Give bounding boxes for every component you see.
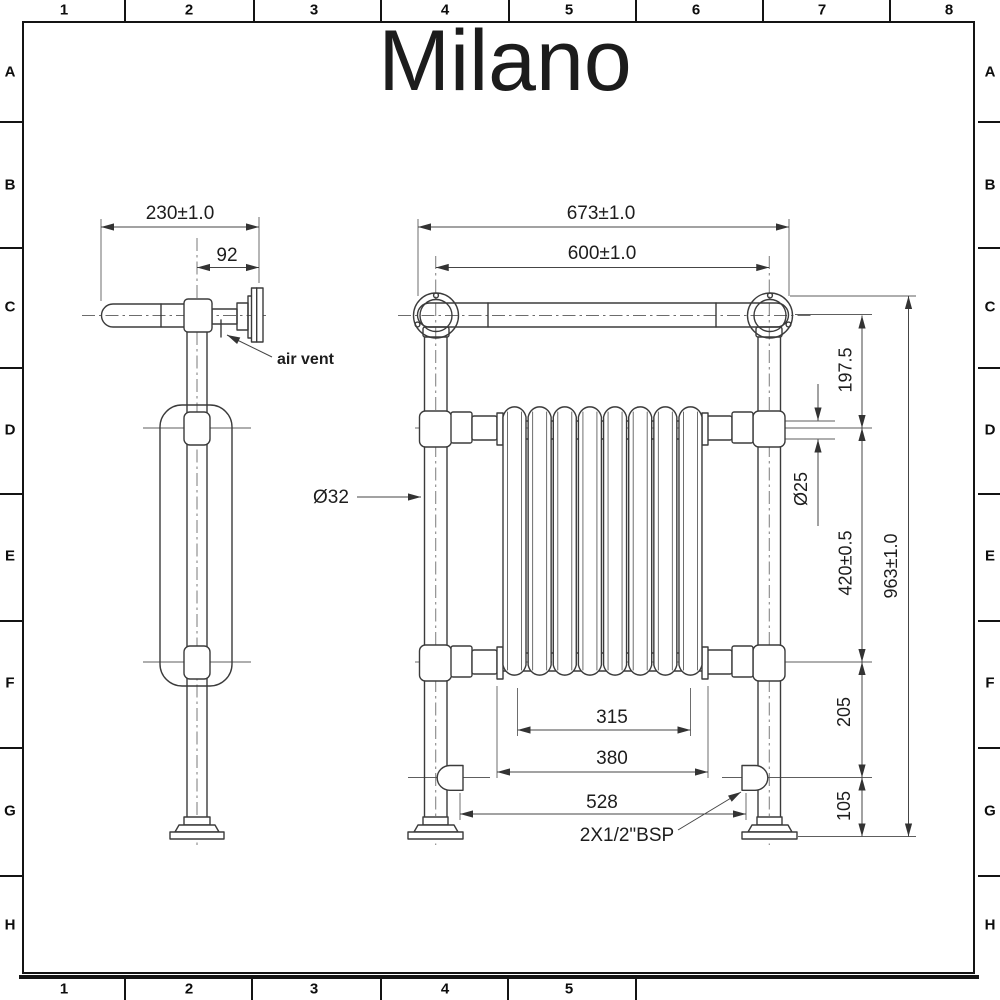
- dim-floor-clearance: 105: [834, 791, 854, 821]
- radiator-section: [629, 407, 652, 675]
- dim-overall-depth: 230±1.0: [146, 203, 215, 224]
- technical-drawing: 230±1.0 92 air vent Ø32 673±1.0 600±1.0 …: [0, 0, 1000, 1000]
- right-valve-connection: [742, 766, 768, 791]
- left-base-flange: [414, 825, 458, 832]
- dim-core-width: 380: [596, 748, 628, 769]
- dim-core-inner-width: 315: [596, 707, 628, 728]
- top-towel-bar: [418, 303, 789, 327]
- right-base-flange: [748, 825, 792, 832]
- side-joint-bottom: [184, 646, 210, 679]
- air-vent-label: air vent: [277, 351, 335, 368]
- dim-valve-centers: 528: [586, 792, 618, 813]
- side-radiator-body: [160, 405, 232, 686]
- bsp-connection-label: 2X1/2"BSP: [580, 825, 674, 846]
- dim-overall-width: 673±1.0: [567, 203, 636, 224]
- radiator-section: [503, 407, 526, 675]
- radiator-section: [528, 407, 551, 675]
- union-nut: [451, 412, 472, 443]
- side-base-flange: [175, 825, 219, 832]
- dim-overall-height: 963±1.0: [881, 534, 901, 599]
- radiator-section: [604, 407, 627, 675]
- dim-top-drop: 197.5: [836, 347, 856, 392]
- dim-valve-drop: 205: [834, 697, 854, 727]
- radiator-core: [503, 407, 702, 675]
- dim-centers-width: 600±1.0: [568, 243, 637, 264]
- left-valve-connection: [437, 766, 463, 791]
- radiator-section: [578, 407, 601, 675]
- side-view: [102, 288, 264, 839]
- dim-crossbar-spacing: 420±0.5: [836, 531, 856, 596]
- dim-post-diameter: Ø32: [313, 487, 349, 508]
- radiator-section: [679, 407, 702, 675]
- bsp-leader: [678, 792, 741, 830]
- post-collar: [420, 411, 452, 447]
- side-joint-top: [184, 412, 210, 445]
- radiator-section: [553, 407, 576, 675]
- side-tee-joint: [184, 299, 212, 332]
- dim-bracket-depth: 92: [216, 245, 237, 266]
- drawing-sheet: 1234567812345ABCDEFGHABCDEFGH Milano: [0, 0, 1000, 1000]
- radiator-section: [654, 407, 677, 675]
- side-wall-tube: [212, 309, 237, 324]
- dim-crossbar-diameter: Ø25: [791, 472, 811, 506]
